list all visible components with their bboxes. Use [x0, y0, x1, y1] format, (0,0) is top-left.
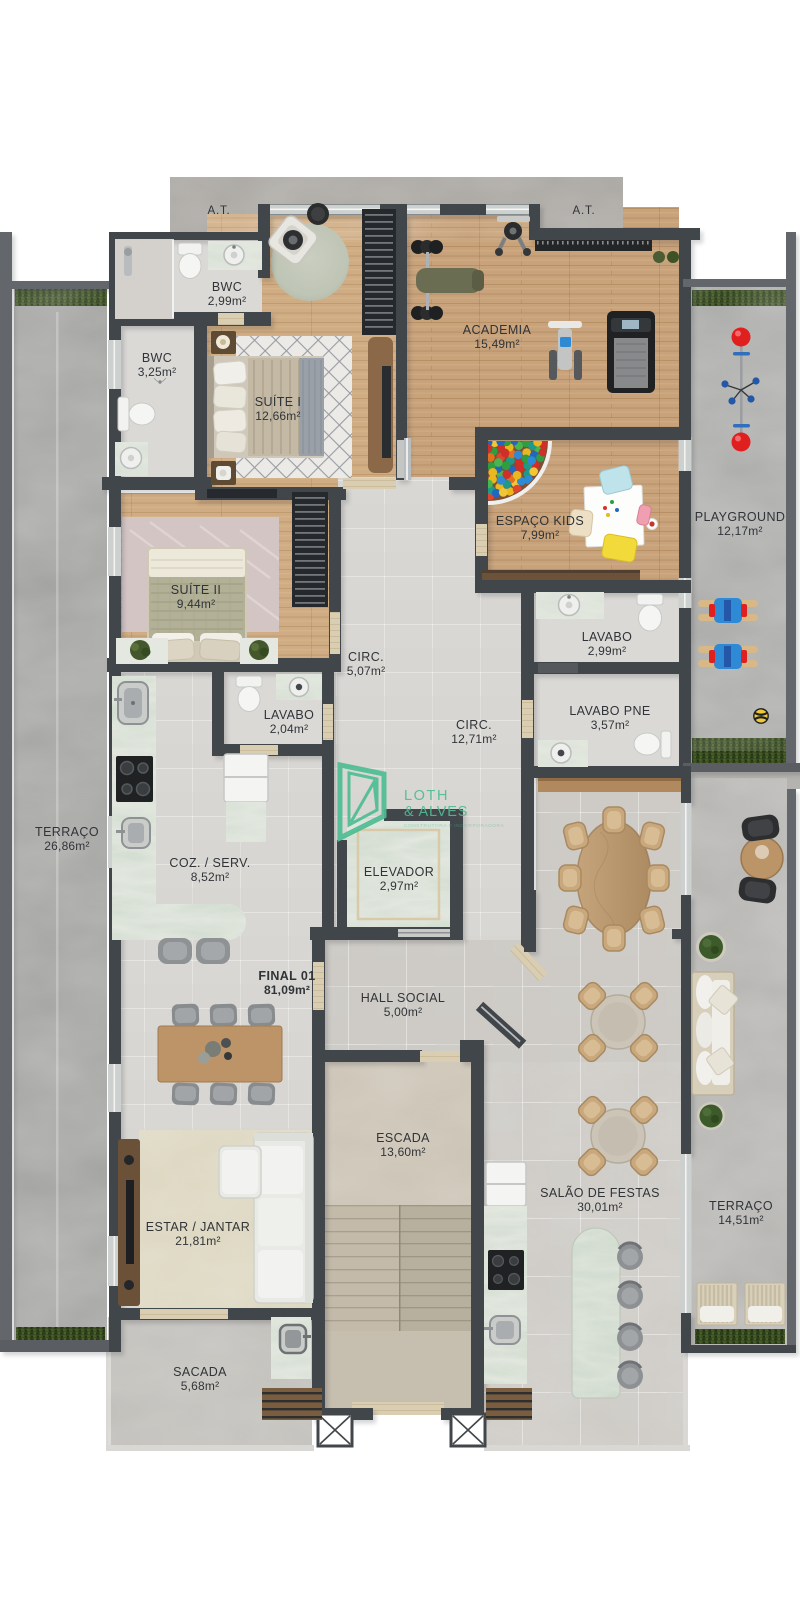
svg-text:12,66m²: 12,66m² — [255, 409, 300, 423]
svg-text:2,99m²: 2,99m² — [208, 294, 247, 308]
svg-text:A.T.: A.T. — [572, 205, 595, 217]
svg-text:12,17m²: 12,17m² — [717, 524, 762, 538]
svg-text:SUÍTE II: SUÍTE II — [171, 582, 221, 597]
svg-text:TERRAÇO: TERRAÇO — [35, 825, 99, 839]
svg-text:81,09m²: 81,09m² — [264, 983, 310, 997]
svg-text:CONSTRUTORA E INCORPORADORA: CONSTRUTORA E INCORPORADORA — [404, 823, 505, 829]
svg-text:15,49m²: 15,49m² — [474, 337, 519, 351]
svg-text:SALÃO DE FESTAS: SALÃO DE FESTAS — [540, 1186, 660, 1200]
svg-text:5,07m²: 5,07m² — [347, 664, 386, 678]
svg-text:ESTAR / JANTAR: ESTAR / JANTAR — [146, 1220, 250, 1234]
svg-text:ESCADA: ESCADA — [376, 1131, 430, 1145]
svg-text:FINAL 01: FINAL 01 — [258, 969, 315, 983]
svg-text:BWC: BWC — [142, 351, 172, 365]
svg-text:LAVABO PNE: LAVABO PNE — [569, 704, 650, 718]
svg-text:26,86m²: 26,86m² — [44, 839, 89, 853]
svg-text:PLAYGROUND: PLAYGROUND — [695, 510, 786, 524]
svg-text:ELEVADOR: ELEVADOR — [364, 865, 434, 879]
svg-text:13,60m²: 13,60m² — [380, 1145, 425, 1159]
svg-text:9,44m²: 9,44m² — [177, 597, 216, 611]
svg-text:CIRC.: CIRC. — [456, 718, 492, 732]
svg-text:8,52m²: 8,52m² — [191, 870, 230, 884]
svg-text:2,04m²: 2,04m² — [270, 722, 309, 736]
svg-text:HALL SOCIAL: HALL SOCIAL — [361, 991, 446, 1005]
svg-text:TERRAÇO: TERRAÇO — [709, 1199, 773, 1213]
svg-text:& ALVES: & ALVES — [404, 804, 468, 820]
svg-text:12,71m²: 12,71m² — [451, 732, 496, 746]
svg-text:SUÍTE I: SUÍTE I — [255, 394, 302, 409]
svg-text:7,99m²: 7,99m² — [521, 528, 560, 542]
svg-text:2,99m²: 2,99m² — [588, 644, 627, 658]
svg-text:2,97m²: 2,97m² — [380, 879, 419, 893]
svg-text:SACADA: SACADA — [173, 1365, 227, 1379]
svg-text:21,81m²: 21,81m² — [175, 1234, 220, 1248]
svg-text:30,01m²: 30,01m² — [577, 1200, 622, 1214]
svg-text:LAVABO: LAVABO — [582, 630, 633, 644]
svg-text:LAVABO: LAVABO — [264, 708, 315, 722]
svg-text:CIRC.: CIRC. — [348, 650, 384, 664]
svg-text:ESPAÇO KIDS: ESPAÇO KIDS — [496, 514, 584, 528]
svg-text:14,51m²: 14,51m² — [718, 1213, 763, 1227]
svg-text:5,00m²: 5,00m² — [384, 1005, 423, 1019]
svg-text:COZ. / SERV.: COZ. / SERV. — [169, 856, 250, 870]
svg-text:LOTH: LOTH — [404, 788, 449, 804]
svg-text:5,68m²: 5,68m² — [181, 1379, 220, 1393]
svg-text:3,57m²: 3,57m² — [591, 718, 630, 732]
svg-text:A.T.: A.T. — [207, 205, 230, 217]
svg-text:3,25m²: 3,25m² — [138, 365, 177, 379]
svg-text:BWC: BWC — [212, 280, 242, 294]
svg-text:ACADEMIA: ACADEMIA — [463, 323, 532, 337]
